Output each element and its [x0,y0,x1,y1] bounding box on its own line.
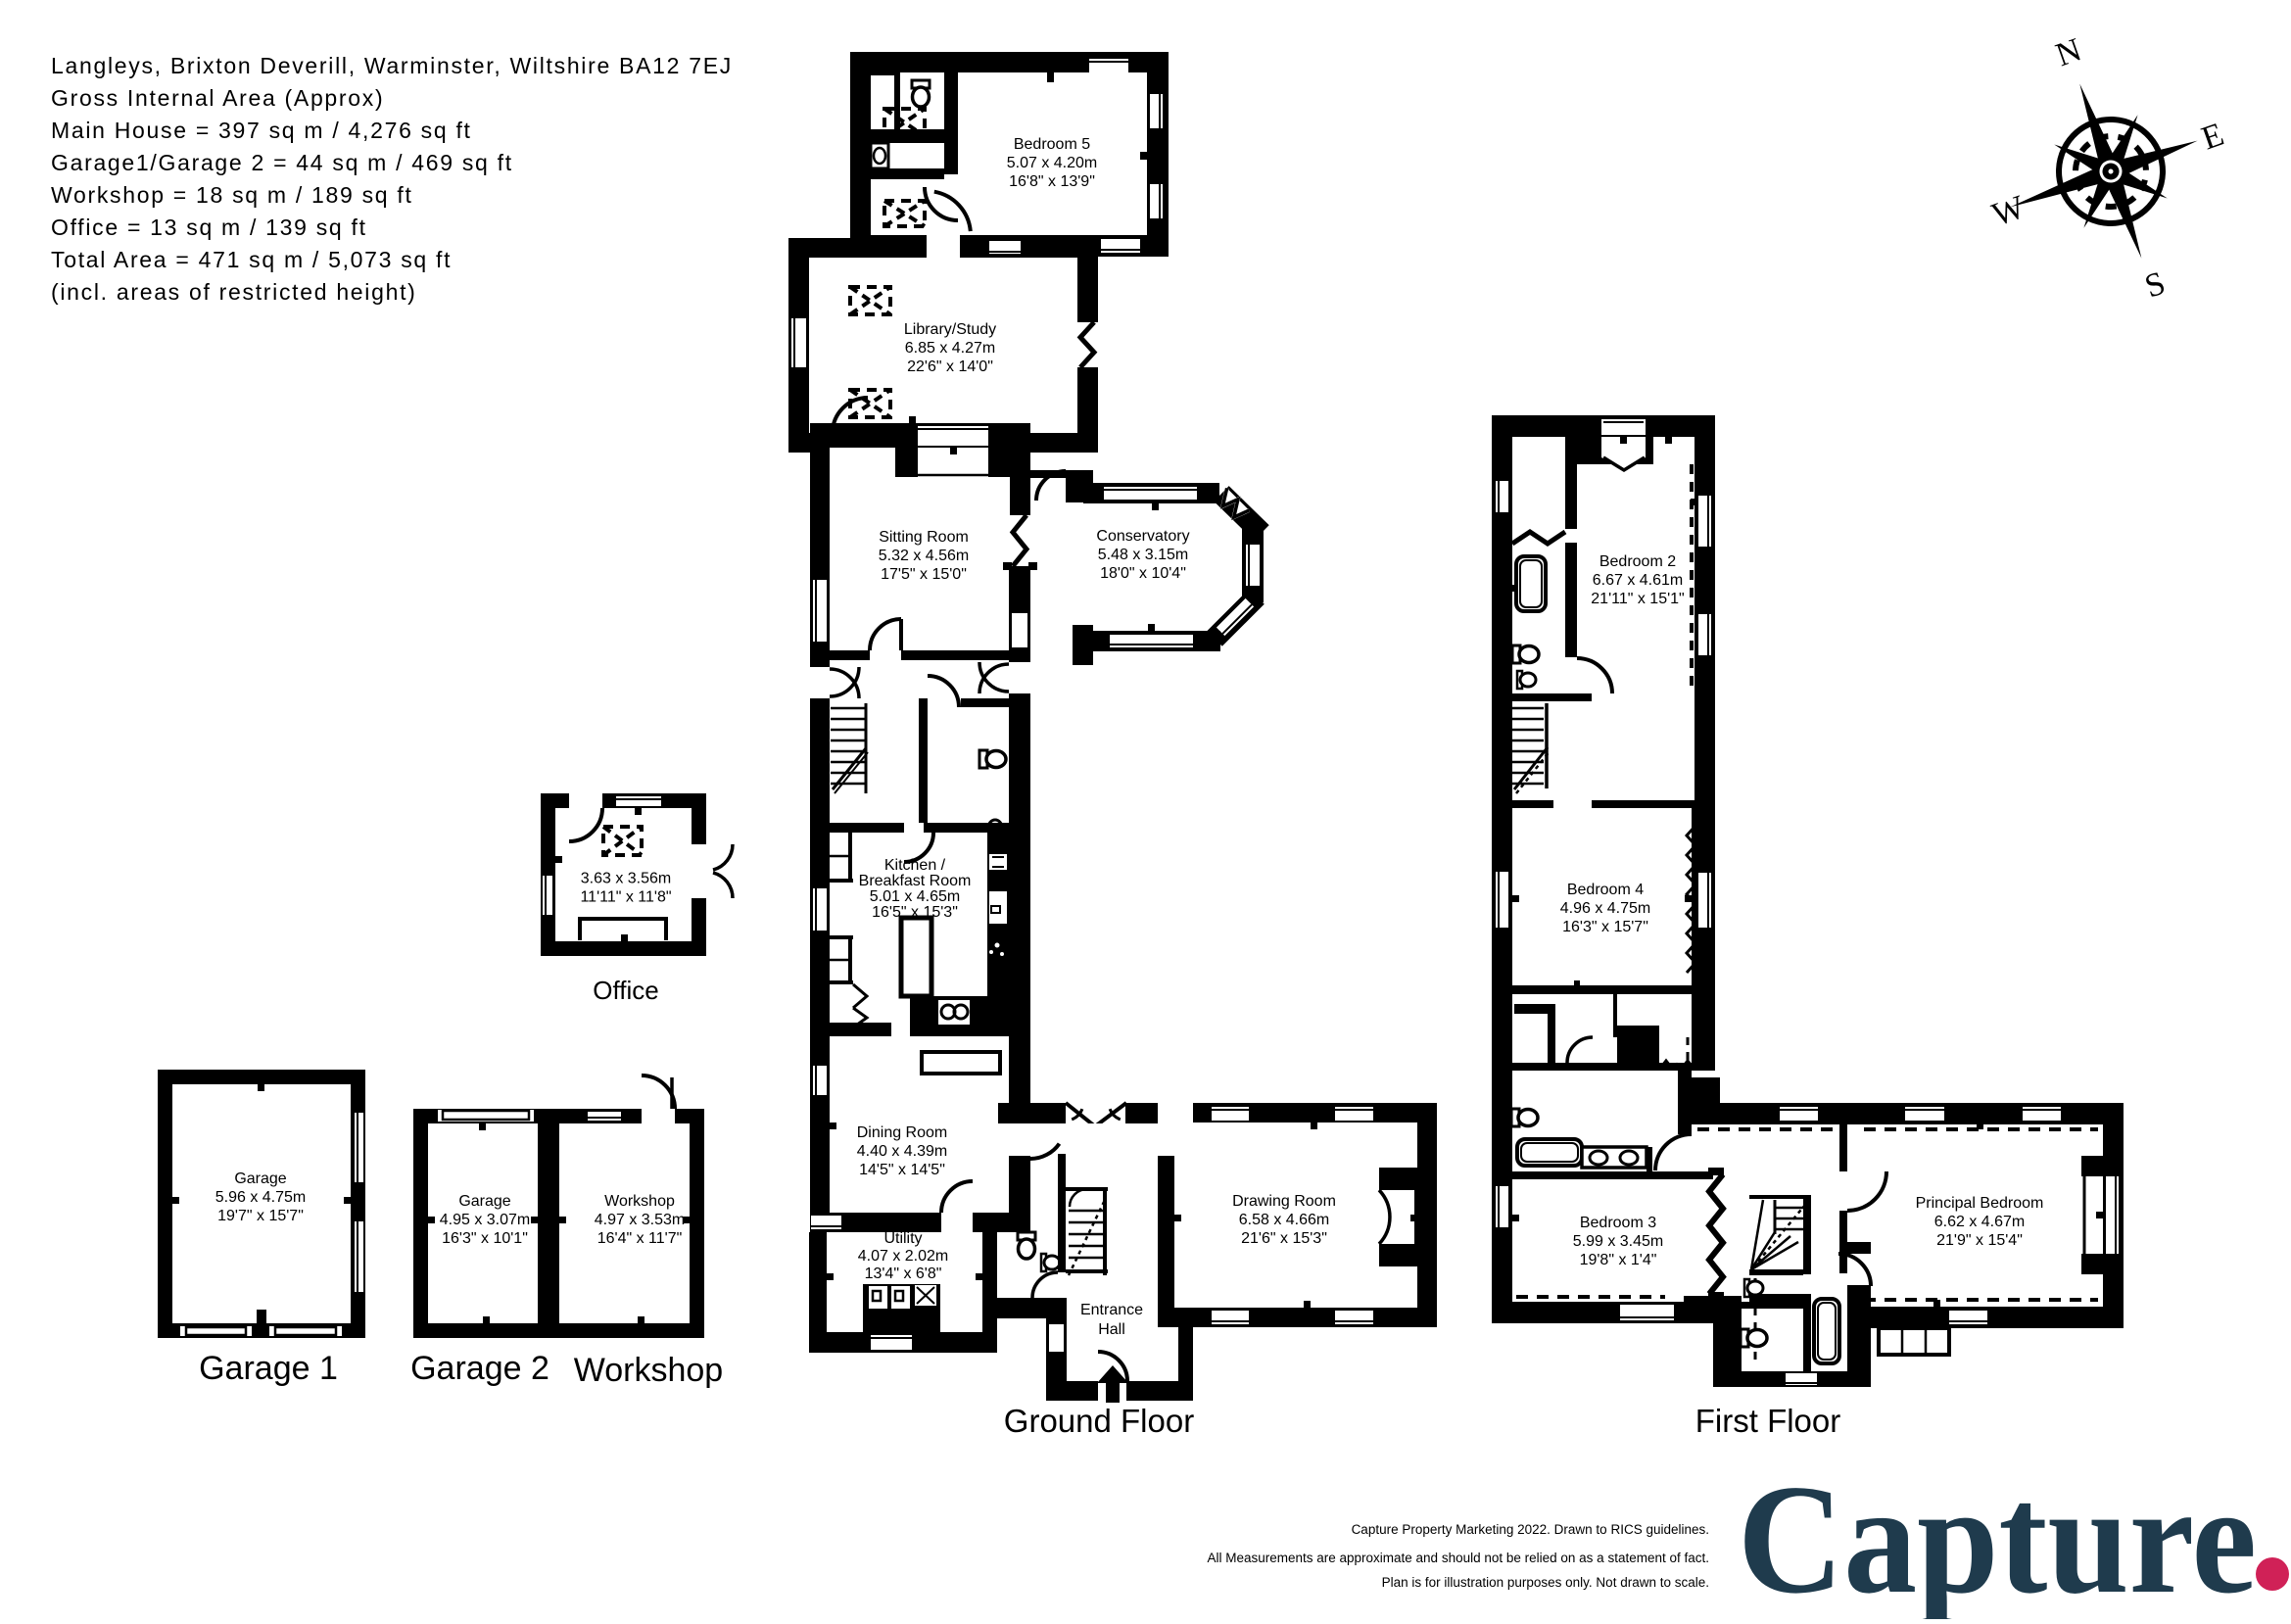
svg-text:Sitting Room: Sitting Room [879,529,969,546]
svg-text:First Floor: First Floor [1695,1403,1841,1439]
svg-text:5.32 x 4.56m: 5.32 x 4.56m [879,548,970,564]
svg-text:16'8" x 13'9": 16'8" x 13'9" [1009,173,1095,190]
svg-text:22'6" x 14'0": 22'6" x 14'0" [907,358,993,375]
svg-text:6.85 x 4.27m: 6.85 x 4.27m [905,340,996,357]
svg-text:17'5" x 15'0": 17'5" x 15'0" [881,566,967,583]
svg-text:16'3" x 10'1": 16'3" x 10'1" [442,1230,528,1247]
svg-text:Garage: Garage [234,1170,286,1187]
svg-text:Garage 1: Garage 1 [199,1350,338,1387]
svg-text:4.96 x 4.75m: 4.96 x 4.75m [1560,900,1651,917]
svg-text:Workshop: Workshop [574,1352,723,1389]
svg-text:Gross Internal Area (Approx): Gross Internal Area (Approx) [51,85,384,111]
svg-text:19'7" x 15'7": 19'7" x 15'7" [217,1208,304,1224]
svg-text:5.01 x 4.65m: 5.01 x 4.65m [870,888,961,905]
svg-text:16'3" x 15'7": 16'3" x 15'7" [1562,919,1648,935]
svg-text:5.96 x 4.75m: 5.96 x 4.75m [215,1189,307,1206]
svg-text:6.62 x 4.67m: 6.62 x 4.67m [1934,1214,2026,1230]
svg-text:5.07 x 4.20m: 5.07 x 4.20m [1007,155,1098,171]
svg-text:Conservatory: Conservatory [1096,528,1189,545]
svg-text:Hall: Hall [1098,1321,1125,1338]
svg-text:Garage1/Garage 2 = 44 sq m / 4: Garage1/Garage 2 = 44 sq m / 469 sq ft [51,150,513,175]
svg-text:Workshop: Workshop [604,1193,675,1210]
svg-text:Total Area = 471 sq m / 5,073: Total Area = 471 sq m / 5,073 sq ft [51,247,452,272]
svg-text:5.99 x 3.45m: 5.99 x 3.45m [1573,1233,1664,1250]
svg-text:Dining Room: Dining Room [857,1124,947,1141]
svg-text:All Measurements are approxima: All Measurements are approximate and sho… [1207,1551,1709,1565]
svg-text:4.07 x 2.02m: 4.07 x 2.02m [858,1248,949,1265]
svg-text:16'5" x 15'3": 16'5" x 15'3" [872,904,958,921]
svg-text:Workshop = 18 sq m / 189 sq ft: Workshop = 18 sq m / 189 sq ft [51,182,413,208]
svg-text:Office = 13 sq m / 139 sq ft: Office = 13 sq m / 139 sq ft [51,215,367,240]
svg-text:Entrance: Entrance [1080,1302,1143,1318]
svg-text:Library/Study: Library/Study [904,321,996,338]
svg-text:(incl. areas of restricted hei: (incl. areas of restricted height) [51,279,417,305]
svg-text:21'6" x 15'3": 21'6" x 15'3" [1241,1230,1327,1247]
svg-text:11'11" x 11'8": 11'11" x 11'8" [580,889,671,906]
svg-text:Breakfast Room: Breakfast Room [859,873,972,889]
svg-text:5.48 x 3.15m: 5.48 x 3.15m [1098,547,1189,563]
svg-text:Bedroom 5: Bedroom 5 [1014,136,1090,153]
svg-text:Bedroom 2: Bedroom 2 [1599,553,1676,570]
svg-text:Capture: Capture [1738,1452,2257,1619]
svg-text:Langleys, Brixton Deverill, Wa: Langleys, Brixton Deverill, Warminster, … [51,53,733,78]
svg-text:6.58 x 4.66m: 6.58 x 4.66m [1239,1212,1330,1228]
svg-text:3.63 x 3.56m: 3.63 x 3.56m [581,871,672,887]
svg-text:4.40 x 4.39m: 4.40 x 4.39m [857,1143,948,1160]
svg-text:Bedroom 3: Bedroom 3 [1580,1215,1656,1231]
svg-text:14'5" x 14'5": 14'5" x 14'5" [859,1162,945,1178]
svg-text:Garage: Garage [458,1193,510,1210]
svg-text:Ground Floor: Ground Floor [1004,1403,1194,1439]
svg-text:18'0" x 10'4": 18'0" x 10'4" [1100,565,1186,582]
svg-text:Drawing Room: Drawing Room [1232,1193,1336,1210]
svg-text:Utility: Utility [883,1230,922,1247]
svg-text:Main House = 397 sq m / 4,276: Main House = 397 sq m / 4,276 sq ft [51,118,472,143]
svg-text:21'9" x 15'4": 21'9" x 15'4" [1936,1232,2023,1249]
svg-text:19'8" x 1'4": 19'8" x 1'4" [1580,1252,1657,1268]
svg-text:Bedroom 4: Bedroom 4 [1567,882,1644,898]
svg-text:Capture Property Marketing 202: Capture Property Marketing 2022. Drawn t… [1352,1522,1709,1537]
svg-text:Kitchen /: Kitchen / [884,857,946,874]
svg-text:6.67 x 4.61m: 6.67 x 4.61m [1593,572,1684,589]
svg-text:Principal Bedroom: Principal Bedroom [1916,1195,2044,1212]
svg-text:13'4" x 6'8": 13'4" x 6'8" [865,1266,942,1282]
svg-text:4.97 x 3.53m: 4.97 x 3.53m [595,1212,686,1228]
svg-text:4.95 x 3.07m: 4.95 x 3.07m [440,1212,531,1228]
svg-text:21'11" x 15'1": 21'11" x 15'1" [1591,591,1684,607]
svg-text:Plan is for illustration purpo: Plan is for illustration purposes only. … [1382,1575,1709,1590]
svg-text:Garage 2: Garage 2 [410,1350,549,1387]
svg-text:16'4" x 11'7": 16'4" x 11'7" [597,1230,683,1247]
svg-text:Office: Office [593,976,658,1005]
